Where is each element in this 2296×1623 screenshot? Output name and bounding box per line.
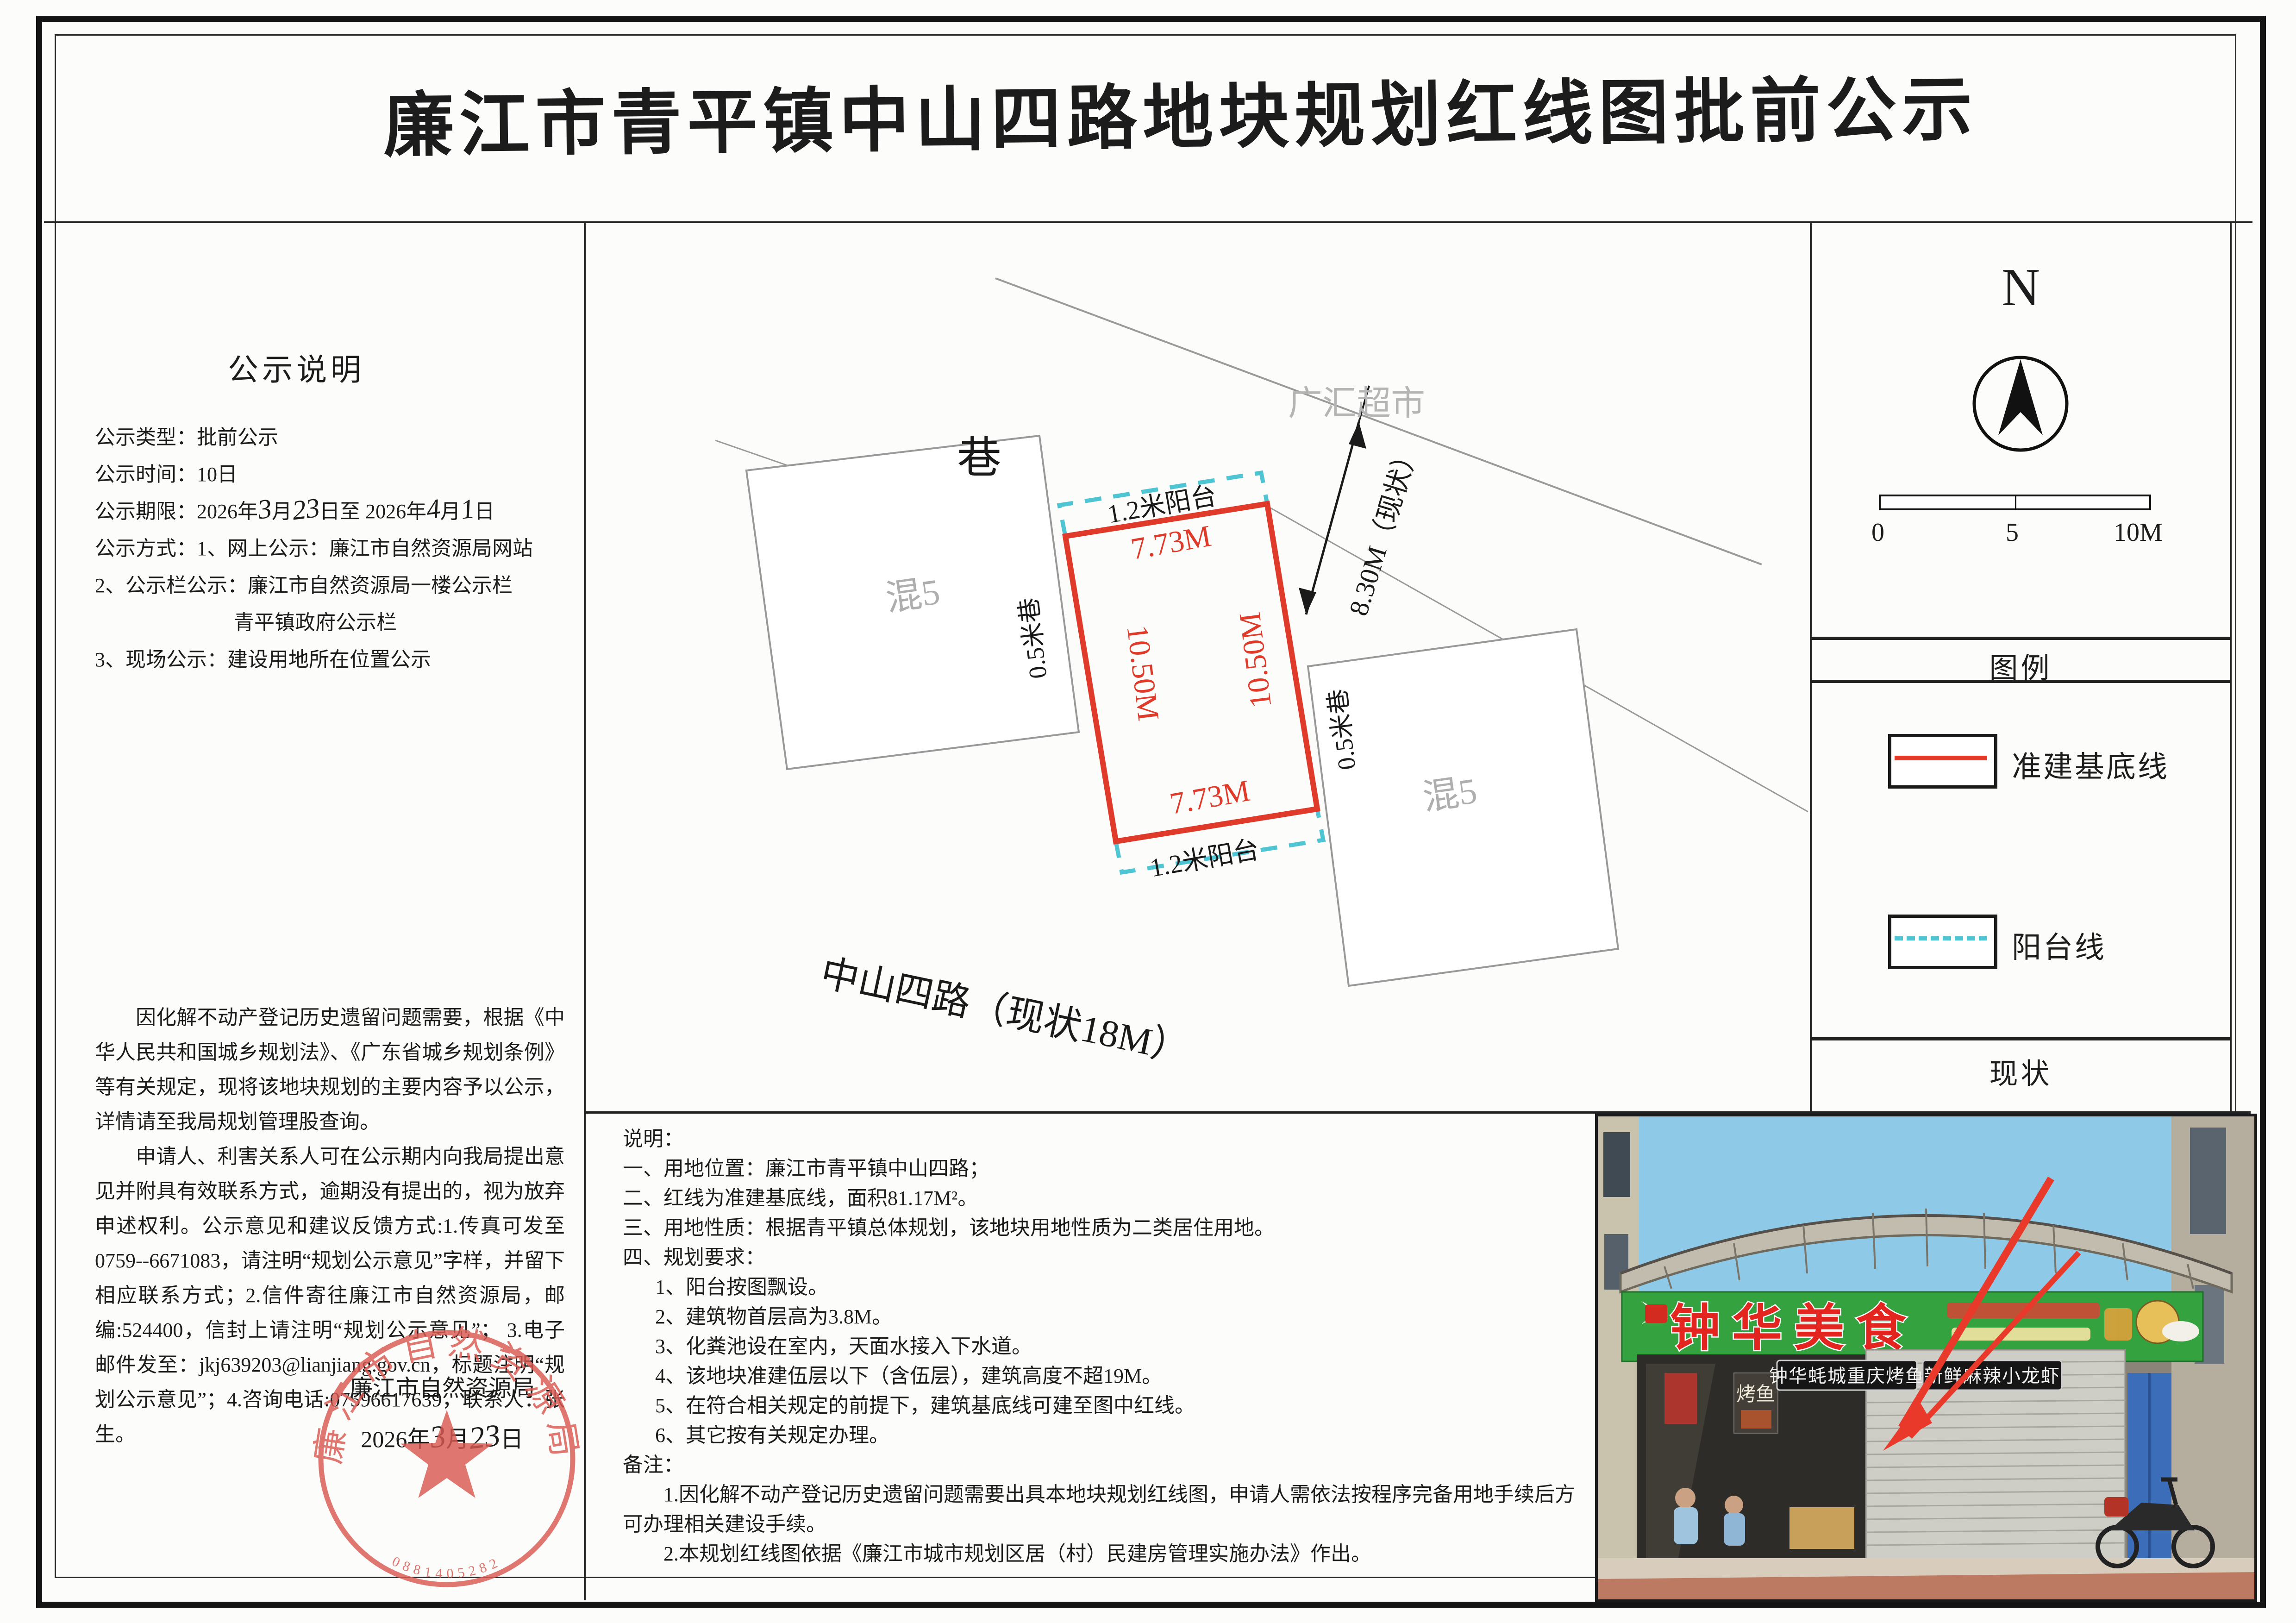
notes-heading: 说明： — [623, 1124, 1577, 1154]
remarks-heading: 备注： — [623, 1450, 1577, 1480]
deadline-day-unit2: 日 — [475, 500, 495, 523]
dimension-arrow-top-icon — [1349, 422, 1366, 449]
parcel-left-label: 混5 — [883, 571, 942, 619]
deadline-end-year: 2026年 — [365, 500, 426, 523]
notice-method-line1: 公示方式：1、网上公示：廉江市自然资源局网站 — [95, 530, 567, 567]
legend-cyan-dashed-icon — [1895, 936, 1987, 940]
deadline-label: 公示期限： — [95, 500, 197, 523]
note-line: 6、其它按有关规定办理。 — [623, 1421, 1577, 1450]
deadline-start-month-handwritten: 3 — [258, 508, 271, 510]
document-page: 廉江市青平镇中山四路地块规划红线图批前公示 公示说明 公示类型：批前公示 公示时… — [0, 0, 2296, 1623]
note-line: 4、该地块准建伍层以下（含伍层），建筑高度不超19M。 — [623, 1361, 1577, 1391]
deadline-day-unit: 日至 — [319, 500, 360, 523]
photo-sign-logo — [1645, 1304, 1667, 1323]
remark-line: 2.本规划红线图依据《廉江市城市规划区居（村）民建房管理实施办法》作出。 — [623, 1539, 1577, 1569]
balcony-bottom-label: 1.2米阳台 — [1148, 835, 1261, 883]
note-line: 2、建筑物首层高为3.8M。 — [623, 1302, 1577, 1332]
deadline-end-day-handwritten: 1 — [461, 508, 474, 510]
page-title: 廉江市青平镇中山四路地块规划红线图批前公示 — [185, 50, 2177, 172]
legend-red-line-icon — [1895, 756, 1987, 760]
notice-method-line3: 3、现场公示：建设用地所在位置公示 — [95, 641, 567, 678]
photo-poster-text: 烤鱼 — [1736, 1384, 1775, 1405]
scale-label-0: 0 — [1871, 518, 1884, 547]
deadline-start-year: 2026年 — [197, 500, 258, 523]
width-bottom-label: 7.73M — [1167, 774, 1252, 821]
notice-method-line2b: 青平镇政府公示栏 — [95, 604, 567, 641]
scale-bar — [1879, 495, 2151, 510]
note-line: 一、用地位置：廉江市青平镇中山四路； — [623, 1154, 1577, 1184]
photo-person-body — [1724, 1513, 1745, 1546]
deadline-month-unit2: 月 — [440, 500, 461, 523]
road-label: 中山四路（现状18M） — [817, 952, 1193, 1071]
note-line: 5、在符合相关规定的前提下，建筑基底线可建至图中红线。 — [623, 1391, 1577, 1421]
photo-poster-dish — [1741, 1410, 1771, 1429]
legend-swatch-cyan-box — [1888, 915, 1997, 969]
note-line: 四、规划要求： — [623, 1243, 1577, 1272]
north-letter: N — [1811, 257, 2231, 318]
status-photo: 钟华美食 烤鱼 钟华 — [1595, 1114, 2257, 1602]
scale-label-10m: 10M — [2114, 518, 2163, 547]
photo-person-body — [1674, 1507, 1698, 1544]
deadline-month-unit: 月 — [272, 500, 292, 523]
notice-method-line2: 2、公示栏公示：廉江市自然资源局一楼公示栏 — [95, 567, 567, 604]
seal-star-icon — [400, 1410, 493, 1498]
photo-banner-left-text: 钟华蚝城重庆烤鱼 — [1769, 1366, 1925, 1386]
deadline-end-month-handwritten: 4 — [426, 508, 440, 510]
photo-right-window — [2190, 1128, 2226, 1234]
photo-red-poster — [1664, 1373, 1697, 1424]
legend-band-top-line — [1811, 637, 2231, 640]
photo-sign-main-text: 钟华美食 — [1670, 1301, 1918, 1356]
scale-label-5: 5 — [2006, 518, 2019, 547]
depth-right-label: 10.50M — [1233, 610, 1278, 710]
photo-table — [1789, 1507, 1854, 1549]
photo-person-head — [1675, 1488, 1695, 1508]
lane-boundary-line-west — [715, 440, 793, 467]
notice-type-line: 公示类型：批前公示 — [95, 419, 567, 456]
depth-left-label: 10.50M — [1120, 623, 1165, 723]
legend-band-bottom-line — [1811, 680, 2231, 683]
left-panel-info: 公示类型：批前公示 公示时间：10日 公示期限：2026年3月23日至 2026… — [95, 419, 567, 678]
photo-left-window — [1603, 1132, 1630, 1197]
parcel-right-label: 混5 — [1420, 771, 1479, 818]
legend-label-base-line: 准建基底线 — [2012, 743, 2169, 786]
note-line: 三、用地性质：根据青平镇总体规划，该地块用地性质为二类居住用地。 — [623, 1213, 1577, 1243]
photo-banner-right-text: 新鲜麻辣小龙虾 — [1924, 1366, 2060, 1386]
notice-duration-line: 公示时间：10日 — [95, 456, 567, 493]
legend-swatch-red-box — [1888, 734, 1997, 789]
note-line: 二、红线为准建基底线，面积81.17M²。 — [623, 1184, 1577, 1213]
lane-label: 巷 — [957, 433, 1001, 483]
notes-section: 说明： 一、用地位置：廉江市青平镇中山四路； 二、红线为准建基底线，面积81.1… — [623, 1124, 1577, 1569]
site-plan-diagram: 混5 混5 8.30M（现状） 巷 广汇超市 1.2米阳台 1.2米阳台 0.5… — [586, 223, 1810, 1111]
note-line: 1、阳台按图飘设。 — [623, 1272, 1577, 1302]
notice-deadline-line: 公示期限：2026年3月23日至 2026年4月1日 — [95, 493, 567, 530]
deadline-start-day-handwritten: 23 — [292, 507, 319, 510]
supermarket-label: 广汇超市 — [1288, 385, 1425, 423]
legend-label-balcony-line: 阳台线 — [2012, 924, 2106, 966]
remark-line: 1.因化解不动产登记历史遗留问题需要出具本地块规划红线图，申请人需依法按程序完备… — [623, 1480, 1577, 1539]
dimension-arrow-bottom-icon — [1299, 588, 1316, 614]
photo-person-head — [1725, 1496, 1743, 1514]
compass-icon — [1969, 352, 2072, 456]
status-band-top-line — [1811, 1037, 2231, 1040]
left-panel-heading: 公示说明 — [69, 345, 523, 389]
official-seal: 廉江市自然资源局 0881405282 — [285, 1297, 609, 1621]
dimension-north-label: 8.30M（现状） — [1343, 440, 1424, 619]
scale-bar-tick — [2015, 496, 2016, 508]
photo-sign-mascot-plate — [2162, 1321, 2199, 1341]
legal-paragraph: 因化解不动产登记历史遗留问题需要，根据《中华人民共和国城乡规划法》、《广东省城乡… — [95, 1000, 565, 1139]
note-line: 3、化粪池设在室内，天面水接入下水道。 — [623, 1332, 1577, 1361]
status-header: 现状 — [1811, 1050, 2231, 1092]
